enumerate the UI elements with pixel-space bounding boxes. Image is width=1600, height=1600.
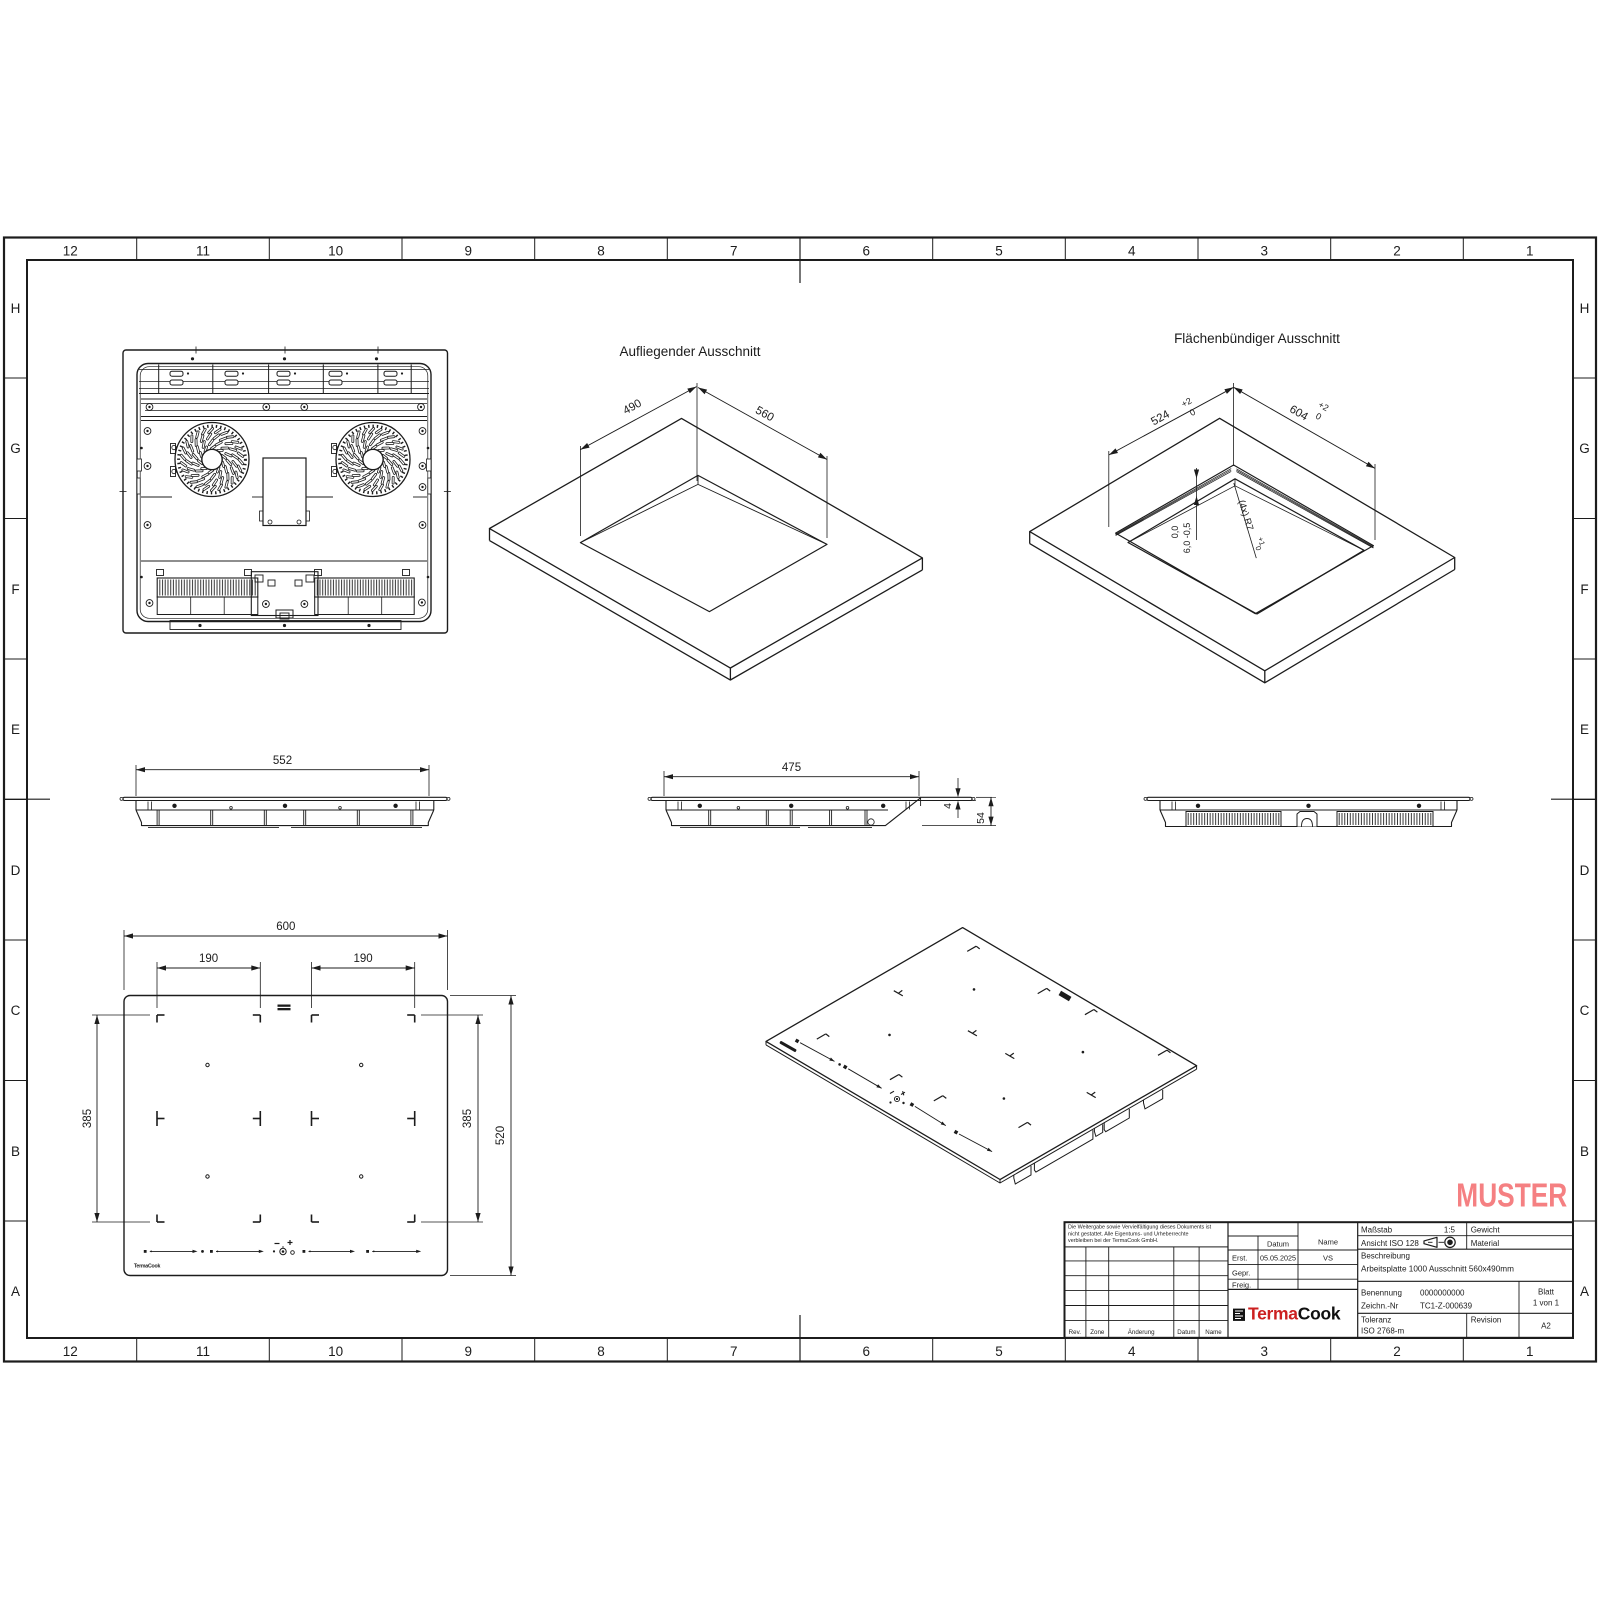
svg-text:05.05.2025: 05.05.2025 (1260, 1254, 1296, 1263)
svg-text:Zeichn.-Nr: Zeichn.-Nr (1361, 1302, 1399, 1311)
svg-text:1 von 1: 1 von 1 (1533, 1299, 1560, 1308)
svg-text:Rev.: Rev. (1069, 1329, 1082, 1336)
svg-text:ISO 2768-m: ISO 2768-m (1361, 1327, 1404, 1336)
svg-text:Material: Material (1471, 1239, 1500, 1248)
svg-text:nicht gestattet. Alle Eigentum: nicht gestattet. Alle Eigentums- und Urh… (1068, 1231, 1188, 1237)
svg-text:11: 11 (196, 1344, 210, 1359)
svg-text:11: 11 (196, 244, 210, 259)
svg-text:B: B (1580, 1144, 1589, 1159)
svg-text:2: 2 (1393, 244, 1401, 259)
svg-text:9: 9 (465, 244, 473, 259)
svg-text:MUSTER: MUSTER (1456, 1177, 1567, 1214)
svg-text:4: 4 (1128, 1344, 1136, 1359)
svg-text:Arbeitsplatte 1000 Ausschnitt: Arbeitsplatte 1000 Ausschnitt 560x490mm (1361, 1265, 1514, 1274)
svg-text:Gewicht: Gewicht (1471, 1226, 1501, 1235)
svg-text:Blatt: Blatt (1538, 1288, 1555, 1297)
svg-text:Maßstab: Maßstab (1361, 1226, 1393, 1235)
svg-text:12: 12 (63, 244, 78, 259)
svg-text:Die Weitergabe sowie Vervielfä: Die Weitergabe sowie Vervielfältigung di… (1068, 1225, 1212, 1231)
svg-text:2: 2 (1393, 1344, 1401, 1359)
svg-text:C: C (11, 1003, 21, 1018)
svg-text:7: 7 (730, 244, 738, 259)
svg-text:190: 190 (199, 953, 218, 965)
svg-text:6: 6 (863, 244, 871, 259)
svg-text:Name: Name (1318, 1238, 1338, 1247)
svg-text:G: G (1579, 441, 1590, 456)
svg-text:0000000000: 0000000000 (1420, 1289, 1465, 1298)
svg-text:Benennung: Benennung (1361, 1289, 1402, 1298)
svg-text:TermaCook: TermaCook (134, 1264, 161, 1270)
svg-text:600: 600 (276, 921, 295, 933)
svg-text:552: 552 (273, 755, 292, 767)
svg-text:D: D (1580, 863, 1590, 878)
svg-text:8: 8 (597, 244, 605, 259)
svg-text:Name: Name (1205, 1329, 1222, 1336)
svg-text:F: F (1580, 582, 1588, 597)
svg-text:0,0: 0,0 (1170, 526, 1180, 539)
svg-text:Änderung: Änderung (1128, 1329, 1155, 1336)
svg-text:1:5: 1:5 (1444, 1226, 1456, 1235)
svg-text:385: 385 (82, 1109, 94, 1128)
svg-text:verbleiben bei der TermaCook G: verbleiben bei der TermaCook GmbH. (1068, 1238, 1158, 1244)
svg-text:A: A (1580, 1284, 1589, 1299)
svg-text:520: 520 (495, 1126, 507, 1145)
svg-text:H: H (1580, 301, 1590, 316)
svg-text:8: 8 (597, 1344, 605, 1359)
svg-text:B: B (11, 1144, 20, 1159)
svg-text:385: 385 (462, 1109, 474, 1128)
svg-text:54: 54 (975, 812, 987, 824)
svg-text:H: H (11, 301, 21, 316)
svg-text:C: C (1580, 1003, 1590, 1018)
svg-text:E: E (1580, 722, 1589, 737)
svg-text:10: 10 (328, 244, 343, 259)
svg-text:VS: VS (1323, 1254, 1333, 1263)
svg-text:12: 12 (63, 1344, 78, 1359)
svg-text:3: 3 (1261, 244, 1269, 259)
svg-text:6,0 -0,5: 6,0 -0,5 (1182, 523, 1192, 554)
svg-text:F: F (11, 582, 19, 597)
svg-text:Ansicht ISO 128: Ansicht ISO 128 (1361, 1239, 1419, 1248)
svg-text:Revision: Revision (1471, 1316, 1502, 1325)
svg-text:9: 9 (465, 1344, 473, 1359)
svg-text:Toleranz: Toleranz (1361, 1316, 1391, 1325)
svg-text:Erst.: Erst. (1232, 1254, 1247, 1263)
svg-text:Datum: Datum (1177, 1329, 1195, 1336)
svg-text:A2: A2 (1541, 1322, 1551, 1331)
svg-text:1: 1 (1526, 244, 1534, 259)
svg-text:Flächenbündiger Ausschnitt: Flächenbündiger Ausschnitt (1174, 331, 1340, 346)
svg-text:Freig.: Freig. (1232, 1280, 1251, 1289)
svg-text:G: G (10, 441, 21, 456)
svg-text:475: 475 (782, 762, 801, 774)
svg-text:7: 7 (730, 1344, 738, 1359)
svg-text:D: D (11, 863, 21, 878)
svg-text:Beschreibung: Beschreibung (1361, 1252, 1410, 1261)
svg-text:10: 10 (328, 1344, 343, 1359)
svg-text:TC1-Z-000639: TC1-Z-000639 (1420, 1302, 1473, 1311)
svg-text:4: 4 (1128, 244, 1136, 259)
svg-text:3: 3 (1261, 1344, 1269, 1359)
svg-text:Aufliegender Ausschnitt: Aufliegender Ausschnitt (619, 344, 760, 359)
svg-text:Datum: Datum (1267, 1240, 1289, 1249)
svg-text:Gepr.: Gepr. (1232, 1268, 1250, 1277)
svg-text:4: 4 (942, 803, 954, 809)
svg-text:A: A (11, 1284, 20, 1299)
svg-text:5: 5 (995, 1344, 1003, 1359)
svg-text:1: 1 (1526, 1344, 1534, 1359)
svg-text:5: 5 (995, 244, 1003, 259)
svg-text:6: 6 (863, 1344, 871, 1359)
svg-text:Zone: Zone (1090, 1329, 1105, 1336)
svg-text:E: E (11, 722, 20, 737)
svg-text:TermaCook: TermaCook (1248, 1304, 1341, 1324)
svg-text:190: 190 (354, 953, 373, 965)
